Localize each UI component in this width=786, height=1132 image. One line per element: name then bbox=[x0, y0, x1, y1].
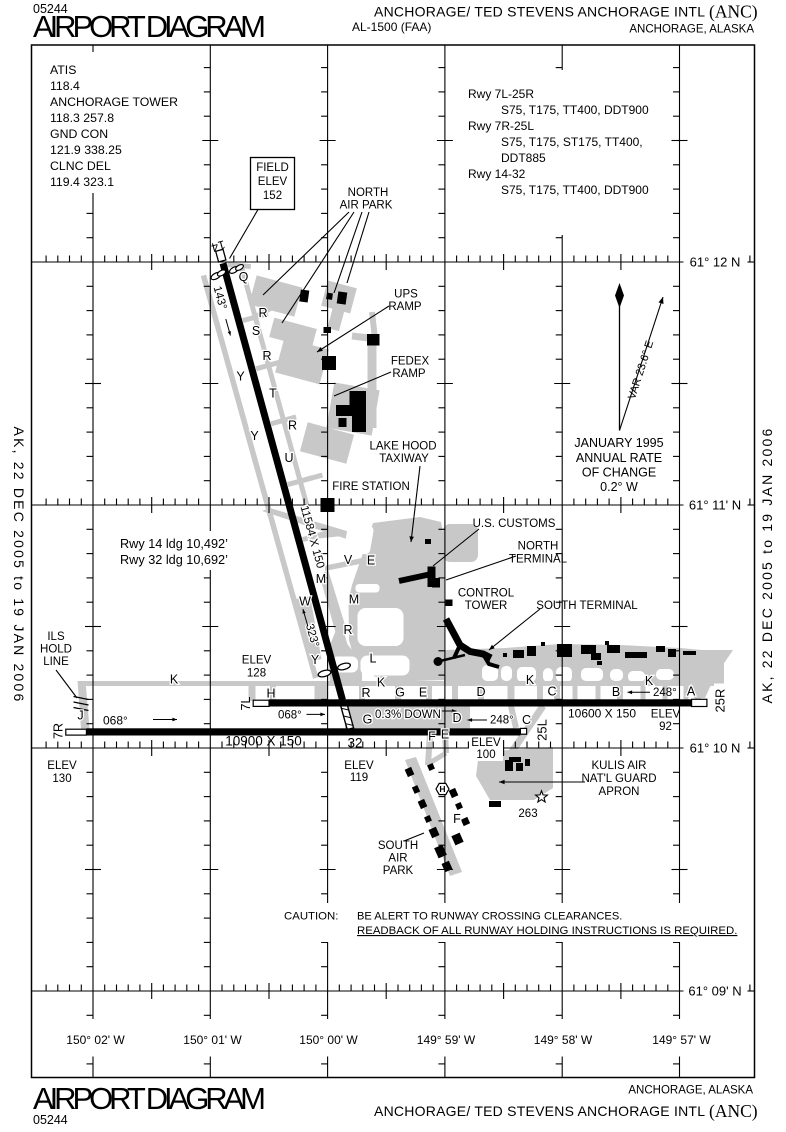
svg-text:DDT885: DDT885 bbox=[501, 151, 546, 165]
svg-text:TERMINAL: TERMINAL bbox=[509, 554, 568, 566]
svg-text:ELEV: ELEV bbox=[651, 709, 681, 721]
svg-text:TOWER: TOWER bbox=[465, 600, 508, 612]
svg-text:D: D bbox=[452, 711, 461, 725]
svg-text:Rwy 7R-25L: Rwy 7R-25L bbox=[468, 119, 534, 133]
svg-text:(ANC): (ANC) bbox=[709, 2, 758, 22]
svg-text:128: 128 bbox=[247, 668, 266, 680]
svg-text:KULIS AIR: KULIS AIR bbox=[592, 760, 647, 772]
svg-text:HOLD: HOLD bbox=[40, 644, 72, 656]
svg-text:S: S bbox=[252, 324, 260, 338]
svg-text:Y: Y bbox=[311, 653, 320, 667]
svg-text:Q: Q bbox=[239, 270, 249, 284]
svg-text:G: G bbox=[395, 686, 405, 700]
svg-text:ELEV: ELEV bbox=[242, 655, 272, 667]
svg-text:ELEV: ELEV bbox=[471, 737, 501, 749]
svg-text:NORTH: NORTH bbox=[518, 541, 559, 553]
svg-text:ANCHORAGE/ TED STEVENS ANCHORA: ANCHORAGE/ TED STEVENS ANCHORAGE INTL bbox=[374, 4, 705, 20]
svg-text:U.S. CUSTOMS: U.S. CUSTOMS bbox=[473, 518, 556, 530]
svg-text:068°: 068° bbox=[278, 709, 302, 721]
svg-text:ELEV: ELEV bbox=[47, 760, 77, 772]
svg-text:JANUARY 1995: JANUARY 1995 bbox=[574, 436, 663, 450]
svg-text:ANNUAL RATE: ANNUAL RATE bbox=[576, 451, 662, 465]
svg-text:E: E bbox=[367, 554, 375, 568]
svg-text:TAXIWAY: TAXIWAY bbox=[379, 453, 429, 465]
svg-text:150° 00' W: 150° 00' W bbox=[299, 1033, 358, 1047]
svg-text:AIR: AIR bbox=[388, 853, 407, 865]
svg-text:V: V bbox=[344, 553, 353, 567]
svg-text:149° 58' W: 149° 58' W bbox=[534, 1033, 593, 1047]
svg-text:10900 X 150: 10900 X 150 bbox=[225, 734, 302, 749]
svg-text:130: 130 bbox=[52, 773, 71, 785]
svg-text:61° 09' N: 61° 09' N bbox=[688, 984, 741, 999]
svg-text:0.3% DOWN: 0.3% DOWN bbox=[375, 709, 441, 721]
svg-text:ANCHORAGE, ALASKA: ANCHORAGE, ALASKA bbox=[628, 1085, 753, 1097]
svg-text:AK, 22 DEC 2005 to 19 JAN 2006: AK, 22 DEC 2005 to 19 JAN 2006 bbox=[11, 427, 27, 704]
svg-text:248°: 248° bbox=[653, 687, 677, 699]
svg-text:LINE: LINE bbox=[43, 656, 69, 668]
svg-text:100: 100 bbox=[476, 749, 495, 761]
svg-text:AL-1500 (FAA): AL-1500 (FAA) bbox=[352, 20, 431, 34]
svg-text:K: K bbox=[645, 674, 654, 688]
svg-text:25R: 25R bbox=[713, 689, 728, 713]
svg-text:J: J bbox=[77, 709, 83, 723]
svg-text:K: K bbox=[170, 673, 179, 687]
svg-text:PARK: PARK bbox=[383, 865, 414, 877]
svg-text:152: 152 bbox=[263, 190, 282, 202]
svg-text:M: M bbox=[349, 593, 359, 607]
svg-text:121.9 338.25: 121.9 338.25 bbox=[50, 143, 122, 157]
svg-text:AIRPORT DIAGRAM: AIRPORT DIAGRAM bbox=[33, 9, 266, 44]
svg-text:068°: 068° bbox=[103, 713, 128, 727]
svg-text:W: W bbox=[299, 595, 311, 609]
svg-text:61° 10 N: 61° 10 N bbox=[690, 741, 741, 756]
svg-text:263: 263 bbox=[518, 808, 537, 820]
svg-text:ANCHORAGE, ALASKA: ANCHORAGE, ALASKA bbox=[629, 24, 754, 36]
svg-text:G: G bbox=[363, 713, 373, 727]
svg-text:CONTROL: CONTROL bbox=[458, 588, 515, 600]
svg-text:APRON: APRON bbox=[599, 786, 640, 798]
svg-text:Rwy 32 ldg 10,692’: Rwy 32 ldg 10,692’ bbox=[120, 553, 228, 567]
svg-text:L: L bbox=[370, 652, 377, 666]
svg-text:R: R bbox=[262, 349, 271, 363]
svg-text:10600 X 150: 10600 X 150 bbox=[568, 707, 636, 721]
svg-text:ILS: ILS bbox=[47, 631, 65, 643]
svg-text:149° 57' W: 149° 57' W bbox=[652, 1033, 711, 1047]
svg-text:118.3 257.8: 118.3 257.8 bbox=[50, 111, 114, 125]
svg-text:R: R bbox=[343, 623, 352, 637]
svg-text:OF CHANGE: OF CHANGE bbox=[582, 466, 656, 480]
svg-text:F: F bbox=[453, 812, 461, 826]
svg-text:R: R bbox=[361, 686, 370, 700]
svg-text:Rwy 14 ldg 10,492’: Rwy 14 ldg 10,492’ bbox=[120, 537, 228, 551]
svg-text:NAT'L GUARD: NAT'L GUARD bbox=[581, 773, 656, 785]
svg-text:ELEV: ELEV bbox=[258, 176, 288, 188]
svg-text:92: 92 bbox=[659, 721, 672, 733]
svg-text:RAMP: RAMP bbox=[388, 301, 422, 313]
svg-text:ATIS: ATIS bbox=[50, 63, 76, 77]
svg-text:AK, 22 DEC 2005 to 19 JAN 2006: AK, 22 DEC 2005 to 19 JAN 2006 bbox=[759, 427, 775, 704]
svg-text:Rwy 14-32: Rwy 14-32 bbox=[468, 167, 526, 181]
svg-text:R: R bbox=[288, 419, 297, 433]
svg-text:0.2° W: 0.2° W bbox=[600, 480, 638, 494]
svg-text:Y: Y bbox=[250, 429, 259, 443]
svg-text:248°: 248° bbox=[490, 715, 514, 727]
svg-text:M: M bbox=[316, 572, 326, 586]
svg-text:A: A bbox=[687, 685, 696, 699]
svg-text:C: C bbox=[522, 713, 531, 727]
svg-text:K: K bbox=[377, 676, 386, 690]
svg-text:AIR PARK: AIR PARK bbox=[340, 200, 393, 212]
svg-text:7L: 7L bbox=[239, 697, 253, 711]
svg-text:K: K bbox=[526, 673, 535, 687]
svg-text:119.4 323.1: 119.4 323.1 bbox=[50, 175, 114, 189]
svg-text:Rwy 7L-25R: Rwy 7L-25R bbox=[468, 87, 534, 101]
svg-text:B: B bbox=[612, 685, 620, 699]
svg-text:FIELD: FIELD bbox=[256, 162, 289, 174]
svg-text:T: T bbox=[269, 387, 277, 401]
svg-text:GND CON: GND CON bbox=[50, 127, 108, 141]
svg-text:AIRPORT DIAGRAM: AIRPORT DIAGRAM bbox=[33, 1081, 266, 1116]
svg-text:150° 01' W: 150° 01' W bbox=[183, 1033, 242, 1047]
svg-text:U: U bbox=[284, 451, 293, 465]
svg-text:S75, T175, ST175, TT400,: S75, T175, ST175, TT400, bbox=[501, 135, 643, 149]
svg-text:61° 12 N: 61° 12 N bbox=[690, 255, 741, 270]
svg-text:E: E bbox=[419, 686, 427, 700]
svg-text:READBACK OF ALL RUNWAY HOLDING: READBACK OF ALL RUNWAY HOLDING INSTRUCTI… bbox=[357, 925, 737, 937]
svg-text:BE ALERT TO RUNWAY CROSSING CL: BE ALERT TO RUNWAY CROSSING CLEARANCES. bbox=[357, 911, 622, 923]
svg-text:05244: 05244 bbox=[33, 1113, 68, 1127]
svg-text:RAMP: RAMP bbox=[392, 368, 426, 380]
svg-text:C: C bbox=[547, 685, 556, 699]
svg-text:FEDEX: FEDEX bbox=[391, 356, 430, 368]
svg-text:D: D bbox=[476, 685, 485, 699]
svg-text:ANCHORAGE TOWER: ANCHORAGE TOWER bbox=[50, 95, 178, 109]
svg-text:S75, T175, TT400, DDT900: S75, T175, TT400, DDT900 bbox=[501, 103, 649, 117]
svg-text:ELEV: ELEV bbox=[344, 760, 374, 772]
svg-text:F: F bbox=[428, 730, 436, 744]
svg-text:SOUTH TERMINAL: SOUTH TERMINAL bbox=[536, 600, 638, 612]
svg-text:149° 59' W: 149° 59' W bbox=[417, 1033, 476, 1047]
svg-text:S75, T175, TT400, DDT900: S75, T175, TT400, DDT900 bbox=[501, 183, 649, 197]
svg-text:150° 02' W: 150° 02' W bbox=[66, 1033, 125, 1047]
svg-text:CAUTION:: CAUTION: bbox=[284, 911, 338, 923]
svg-text:25L: 25L bbox=[535, 719, 550, 741]
svg-text:CLNC DEL: CLNC DEL bbox=[50, 159, 111, 173]
svg-text:(ANC): (ANC) bbox=[709, 1101, 758, 1121]
svg-text:E: E bbox=[441, 728, 449, 742]
svg-text:ANCHORAGE/ TED STEVENS ANCHORA: ANCHORAGE/ TED STEVENS ANCHORAGE INTL bbox=[374, 1103, 705, 1119]
svg-text:H: H bbox=[266, 687, 275, 701]
svg-text:LAKE HOOD: LAKE HOOD bbox=[369, 441, 436, 453]
svg-text:32: 32 bbox=[347, 736, 362, 751]
svg-text:R: R bbox=[258, 306, 267, 320]
svg-text:119: 119 bbox=[350, 772, 368, 784]
svg-text:UPS: UPS bbox=[394, 289, 418, 301]
svg-text:FIRE STATION: FIRE STATION bbox=[332, 481, 410, 493]
svg-text:118.4: 118.4 bbox=[50, 79, 80, 93]
svg-text:7R: 7R bbox=[52, 723, 66, 739]
svg-text:61° 11' N: 61° 11' N bbox=[689, 498, 741, 513]
svg-text:SOUTH: SOUTH bbox=[378, 840, 418, 852]
svg-text:Y: Y bbox=[236, 370, 245, 384]
svg-text:H: H bbox=[439, 784, 445, 794]
svg-text:NORTH: NORTH bbox=[348, 187, 389, 199]
